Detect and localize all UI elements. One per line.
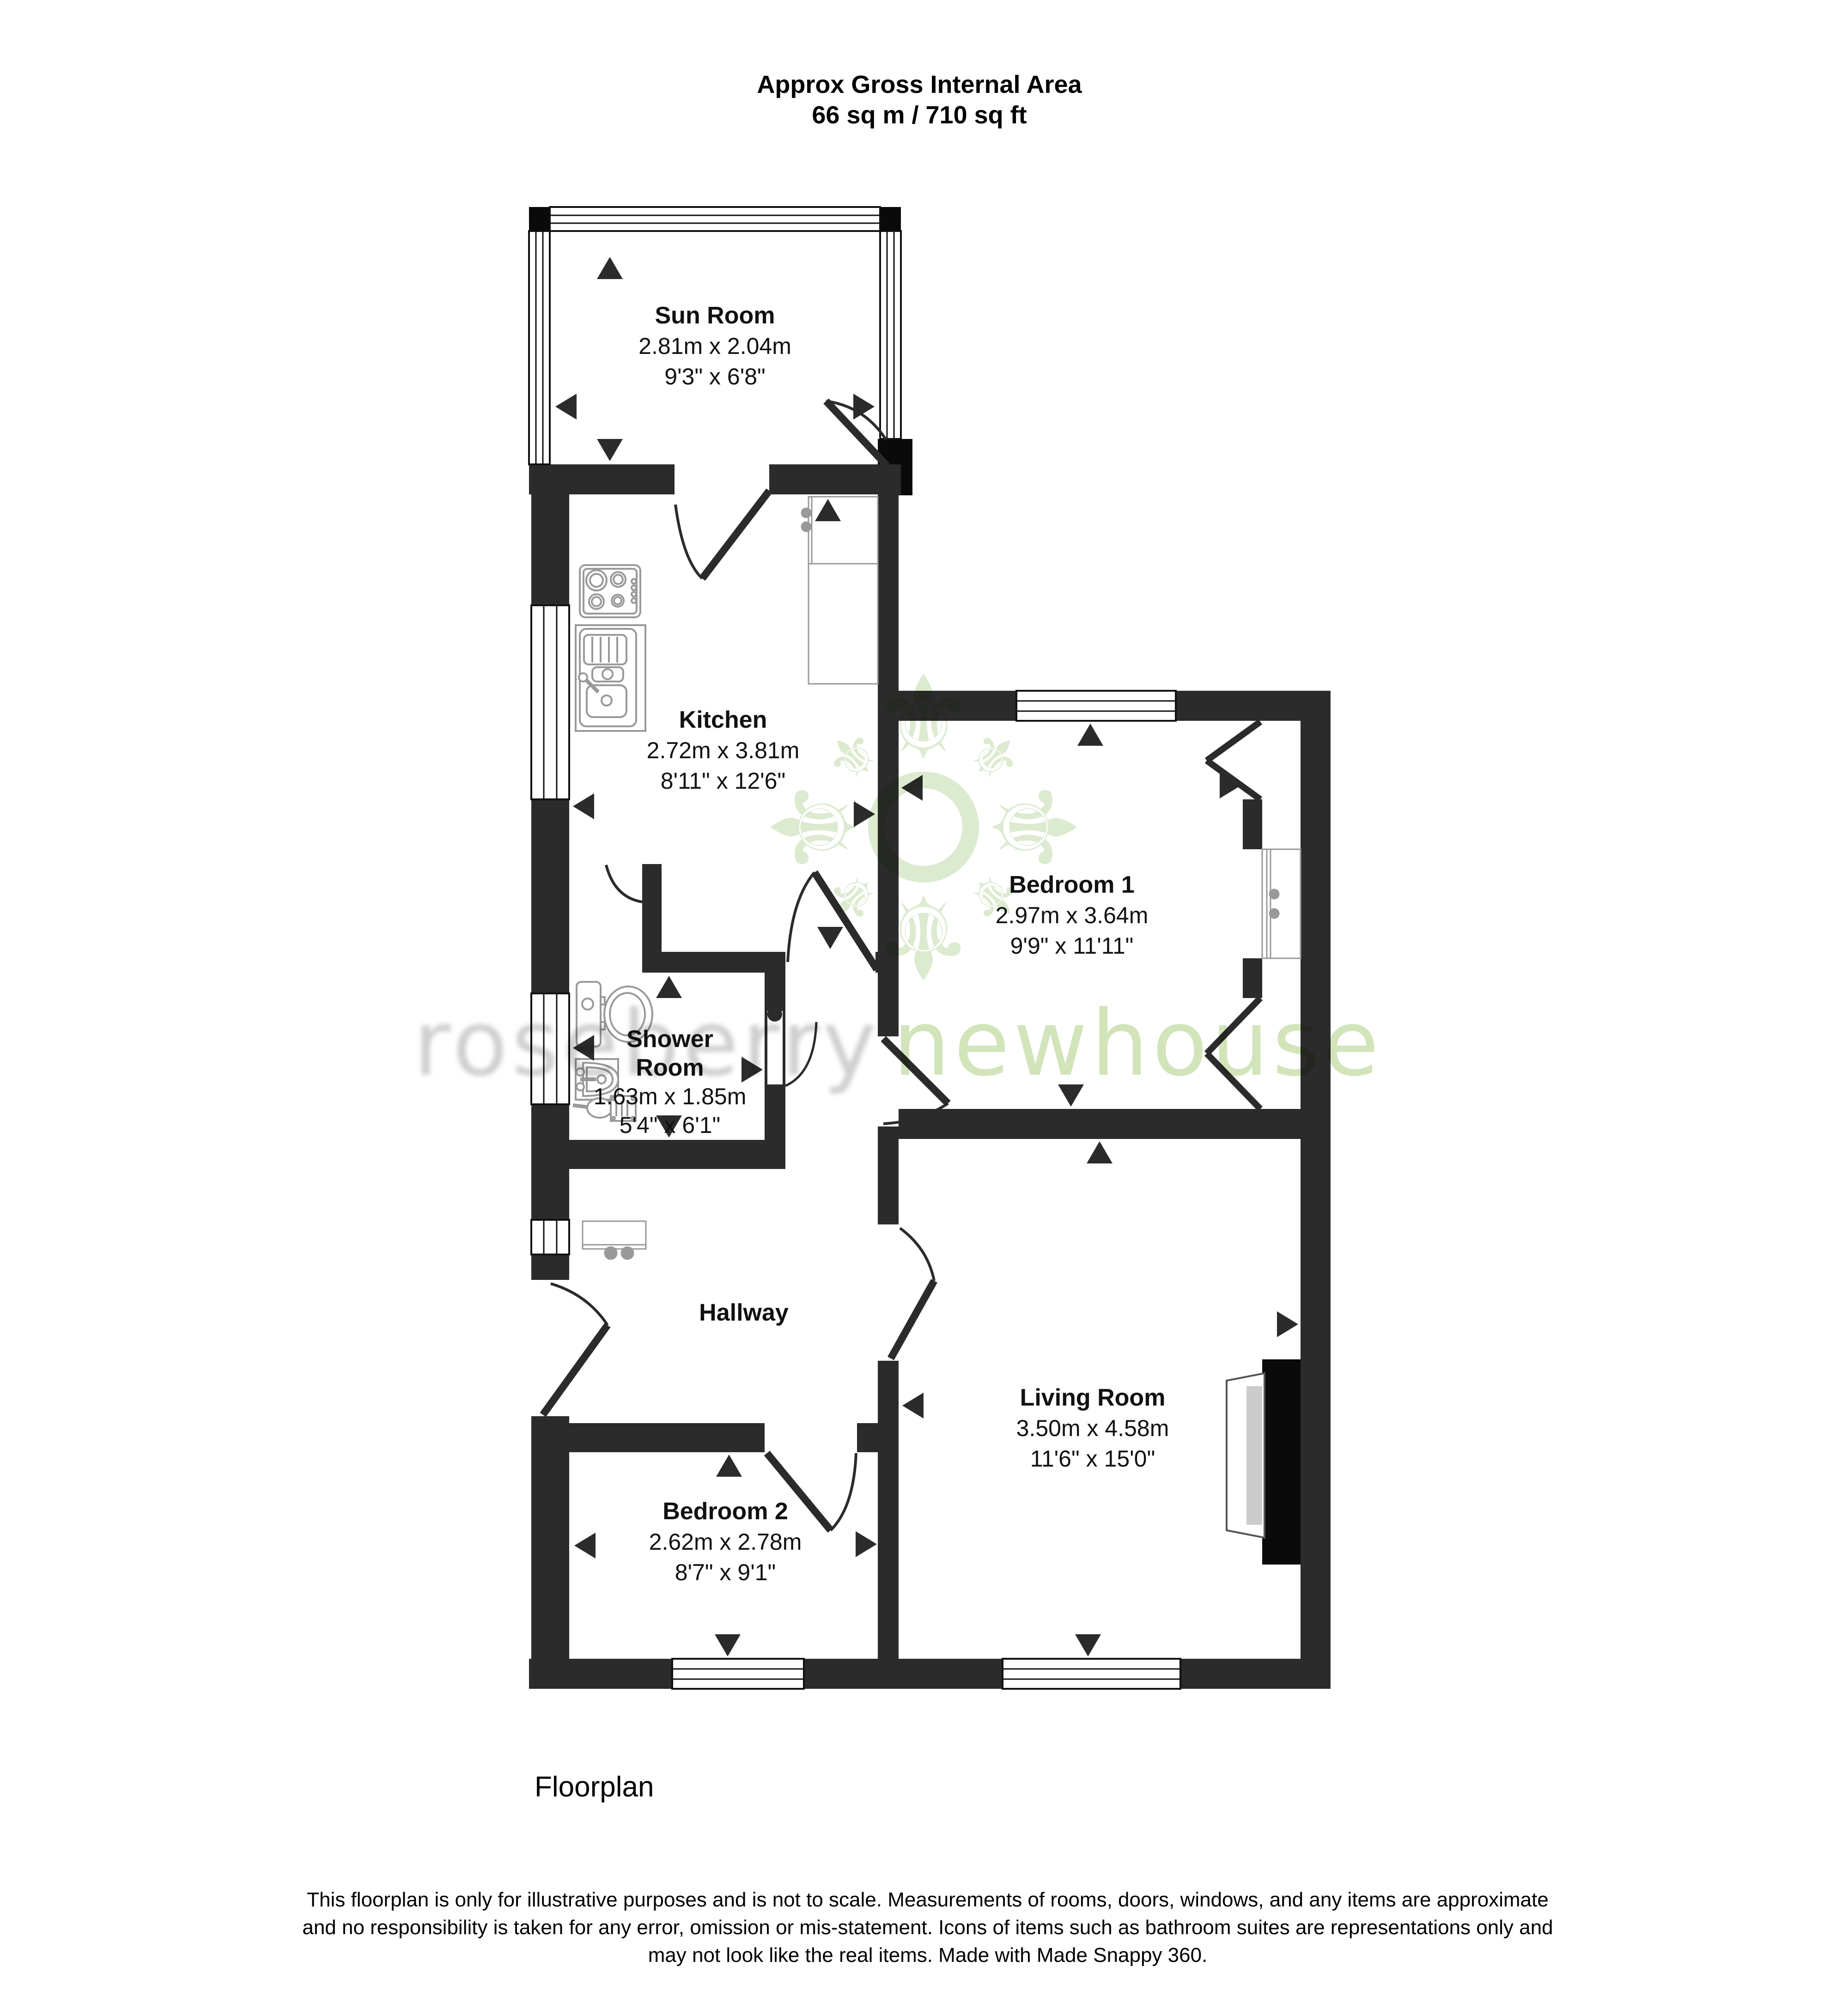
hallway-cabinet-icon bbox=[583, 1221, 646, 1259]
floorplan-caption: Floorplan bbox=[535, 1771, 654, 1803]
room-name: Living Room bbox=[919, 1382, 1266, 1413]
room-name: Bedroom 1 bbox=[899, 870, 1245, 900]
room-name: Sun Room bbox=[529, 300, 901, 331]
bedroom1-cupboard-bottom-doors-icon bbox=[1207, 998, 1260, 1109]
room-metric-dimensions: 2.72m x 3.81m bbox=[571, 735, 875, 766]
sun-room-kitchen-door-icon bbox=[675, 491, 769, 578]
title-line1: Approx Gross Internal Area bbox=[573, 69, 1266, 100]
disclaimer-line3: may not look like the real items. Made w… bbox=[228, 1942, 1628, 1969]
room-name: Bedroom 2 bbox=[571, 1496, 880, 1527]
kitchen-window-icon bbox=[531, 605, 569, 799]
disclaimer-line2: and no responsibility is taken for any e… bbox=[228, 1914, 1628, 1942]
room-metric-dimensions: 1.63m x 1.85m bbox=[538, 1082, 802, 1111]
room-metric-dimensions: 2.62m x 2.78m bbox=[571, 1527, 880, 1557]
living-room-label: Living Room 3.50m x 4.58m 11'6" x 15'0" bbox=[919, 1382, 1266, 1474]
room-imperial-dimensions: 8'7" x 9'1" bbox=[571, 1557, 880, 1588]
entrance-door-icon bbox=[543, 1284, 608, 1415]
shower-room-label: Shower Room 1.63m x 1.85m 5'4" x 6'1" bbox=[538, 1025, 802, 1139]
living-room-window-icon bbox=[1003, 1659, 1180, 1689]
room-imperial-dimensions: 5'4" x 6'1" bbox=[538, 1111, 802, 1139]
bedroom1-wardrobe-icon bbox=[1262, 849, 1301, 958]
floorplan-drawing bbox=[0, 0, 1848, 2003]
hallway-window-icon bbox=[531, 1220, 569, 1254]
room-metric-dimensions: 3.50m x 4.58m bbox=[919, 1413, 1266, 1443]
room-imperial-dimensions: 8'11" x 12'6" bbox=[571, 766, 875, 796]
kitchen-shower-door-icon bbox=[606, 865, 642, 902]
floorplan-page: Sun Room 2.81m x 2.04m 9'3" x 6'8" Kitch… bbox=[0, 0, 1848, 2003]
kitchen-counter-icon bbox=[802, 497, 878, 684]
kitchen-label: Kitchen 2.72m x 3.81m 8'11" x 12'6" bbox=[571, 705, 875, 796]
sun-room-top-window-icon bbox=[550, 207, 880, 231]
room-name: Hallway bbox=[614, 1297, 873, 1328]
room-metric-dimensions: 2.97m x 3.64m bbox=[899, 900, 1245, 931]
room-imperial-dimensions: 11'6" x 15'0" bbox=[919, 1443, 1266, 1474]
hallway-label: Hallway bbox=[614, 1297, 873, 1328]
bedroom2-window-icon bbox=[672, 1659, 804, 1689]
kitchen-hob-icon bbox=[580, 565, 640, 617]
room-metric-dimensions: 2.81m x 2.04m bbox=[529, 331, 901, 361]
bedroom2-label: Bedroom 2 2.62m x 2.78m 8'7" x 9'1" bbox=[571, 1496, 880, 1588]
disclaimer-line1: This floorplan is only for illustrative … bbox=[228, 1886, 1628, 1914]
sun-room-label: Sun Room 2.81m x 2.04m 9'3" x 6'8" bbox=[529, 300, 901, 392]
room-imperial-dimensions: 9'9" x 11'11" bbox=[899, 931, 1245, 961]
room-name-line2: Room bbox=[538, 1053, 802, 1082]
page-title: Approx Gross Internal Area 66 sq m / 710… bbox=[573, 69, 1266, 130]
living-room-door-icon bbox=[891, 1228, 934, 1358]
title-line2: 66 sq m / 710 sq ft bbox=[573, 100, 1266, 130]
room-name: Kitchen bbox=[571, 705, 875, 735]
bedroom1-label: Bedroom 1 2.97m x 3.64m 9'9" x 11'11" bbox=[899, 870, 1245, 961]
disclaimer-text: This floorplan is only for illustrative … bbox=[228, 1886, 1628, 1969]
bedroom1-window-icon bbox=[1016, 691, 1176, 721]
room-name-line1: Shower bbox=[538, 1025, 802, 1053]
kitchen-lobby-door-icon bbox=[788, 872, 877, 969]
room-imperial-dimensions: 9'3" x 6'8" bbox=[529, 361, 901, 392]
